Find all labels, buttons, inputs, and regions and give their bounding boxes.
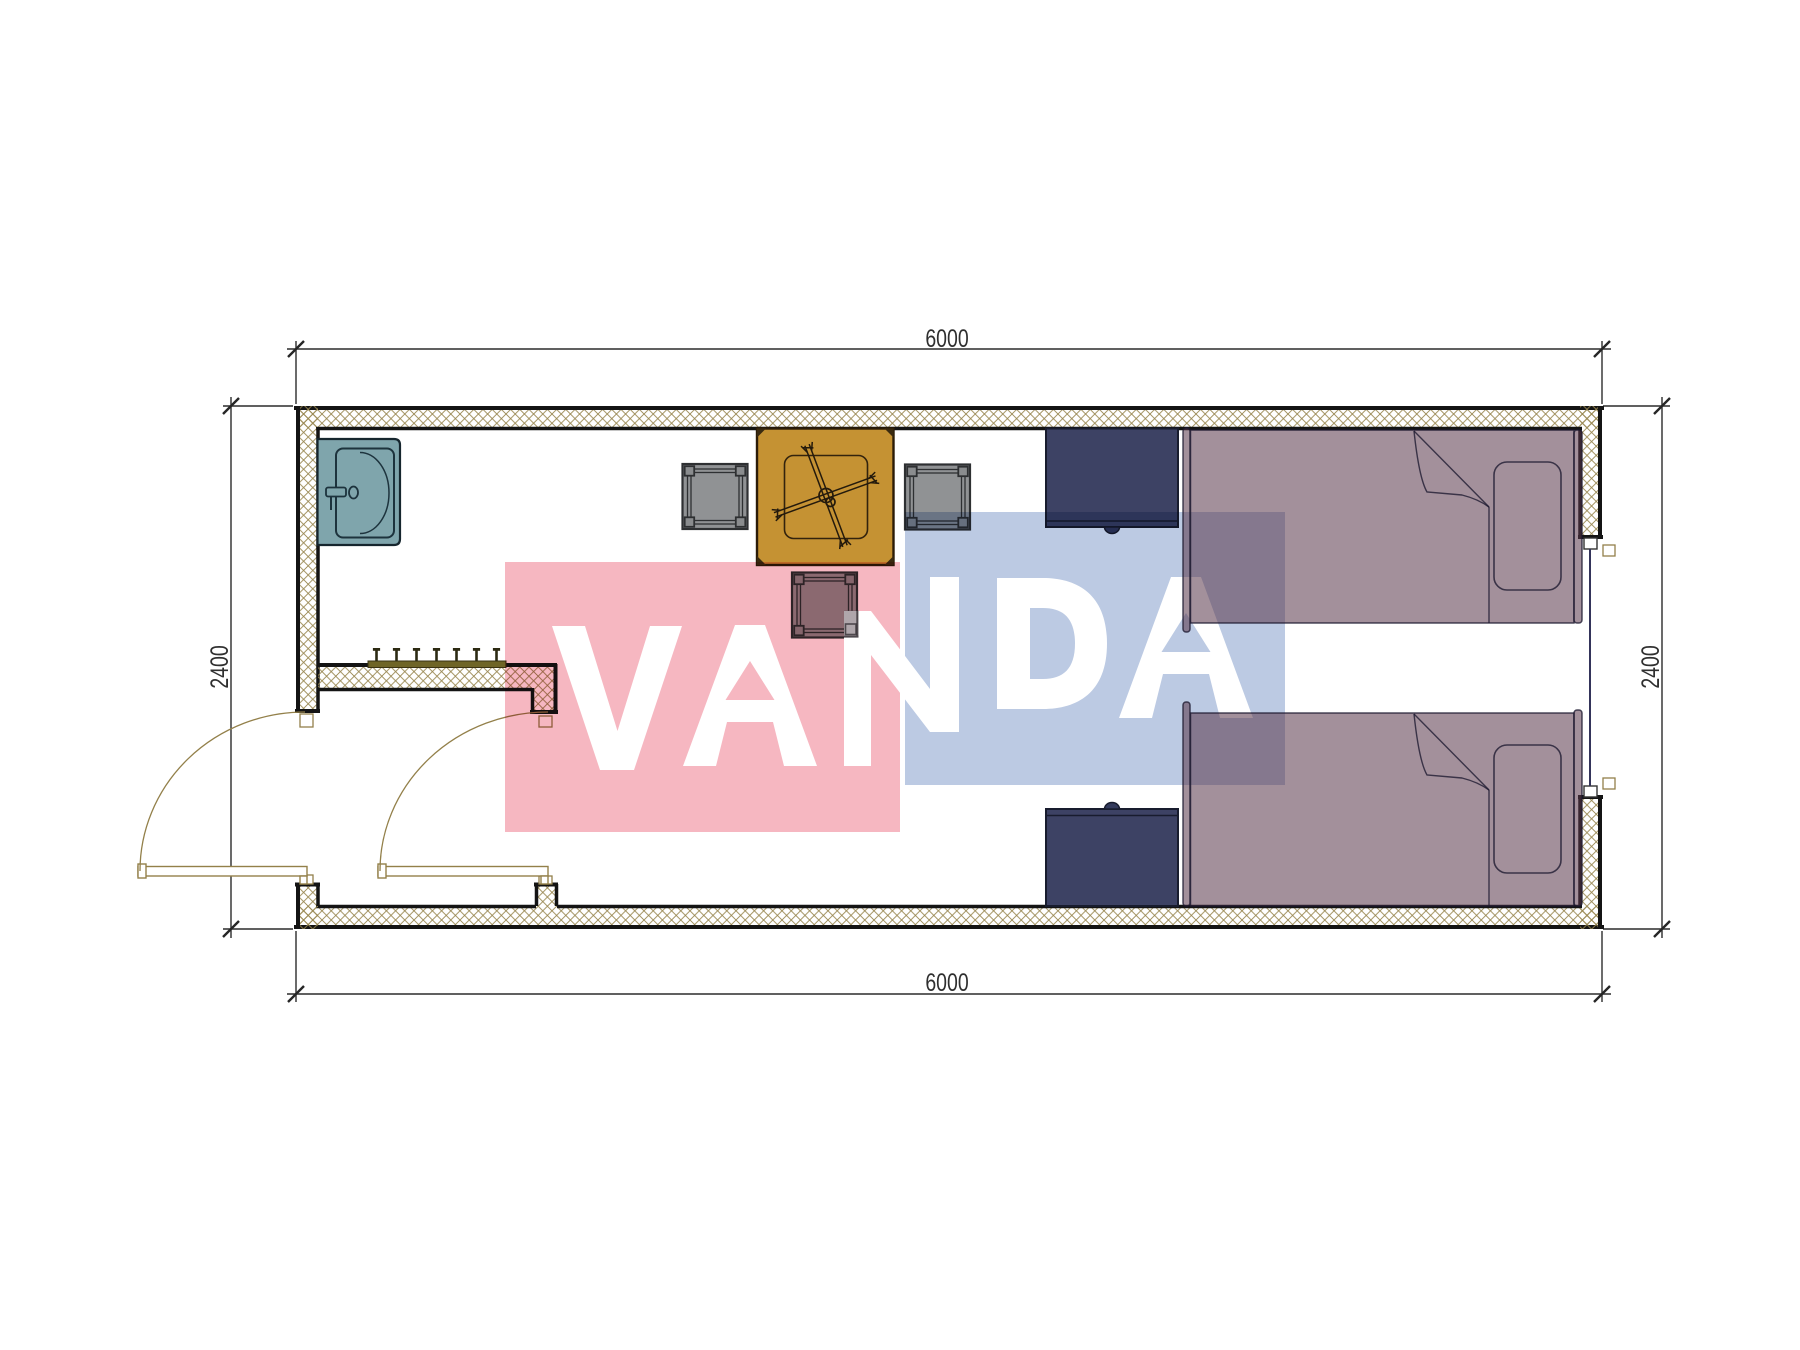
svg-text:6000: 6000 <box>925 325 968 353</box>
svg-text:2400: 2400 <box>1637 645 1665 688</box>
svg-text:2400: 2400 <box>206 645 234 688</box>
svg-text:6000: 6000 <box>925 969 968 997</box>
